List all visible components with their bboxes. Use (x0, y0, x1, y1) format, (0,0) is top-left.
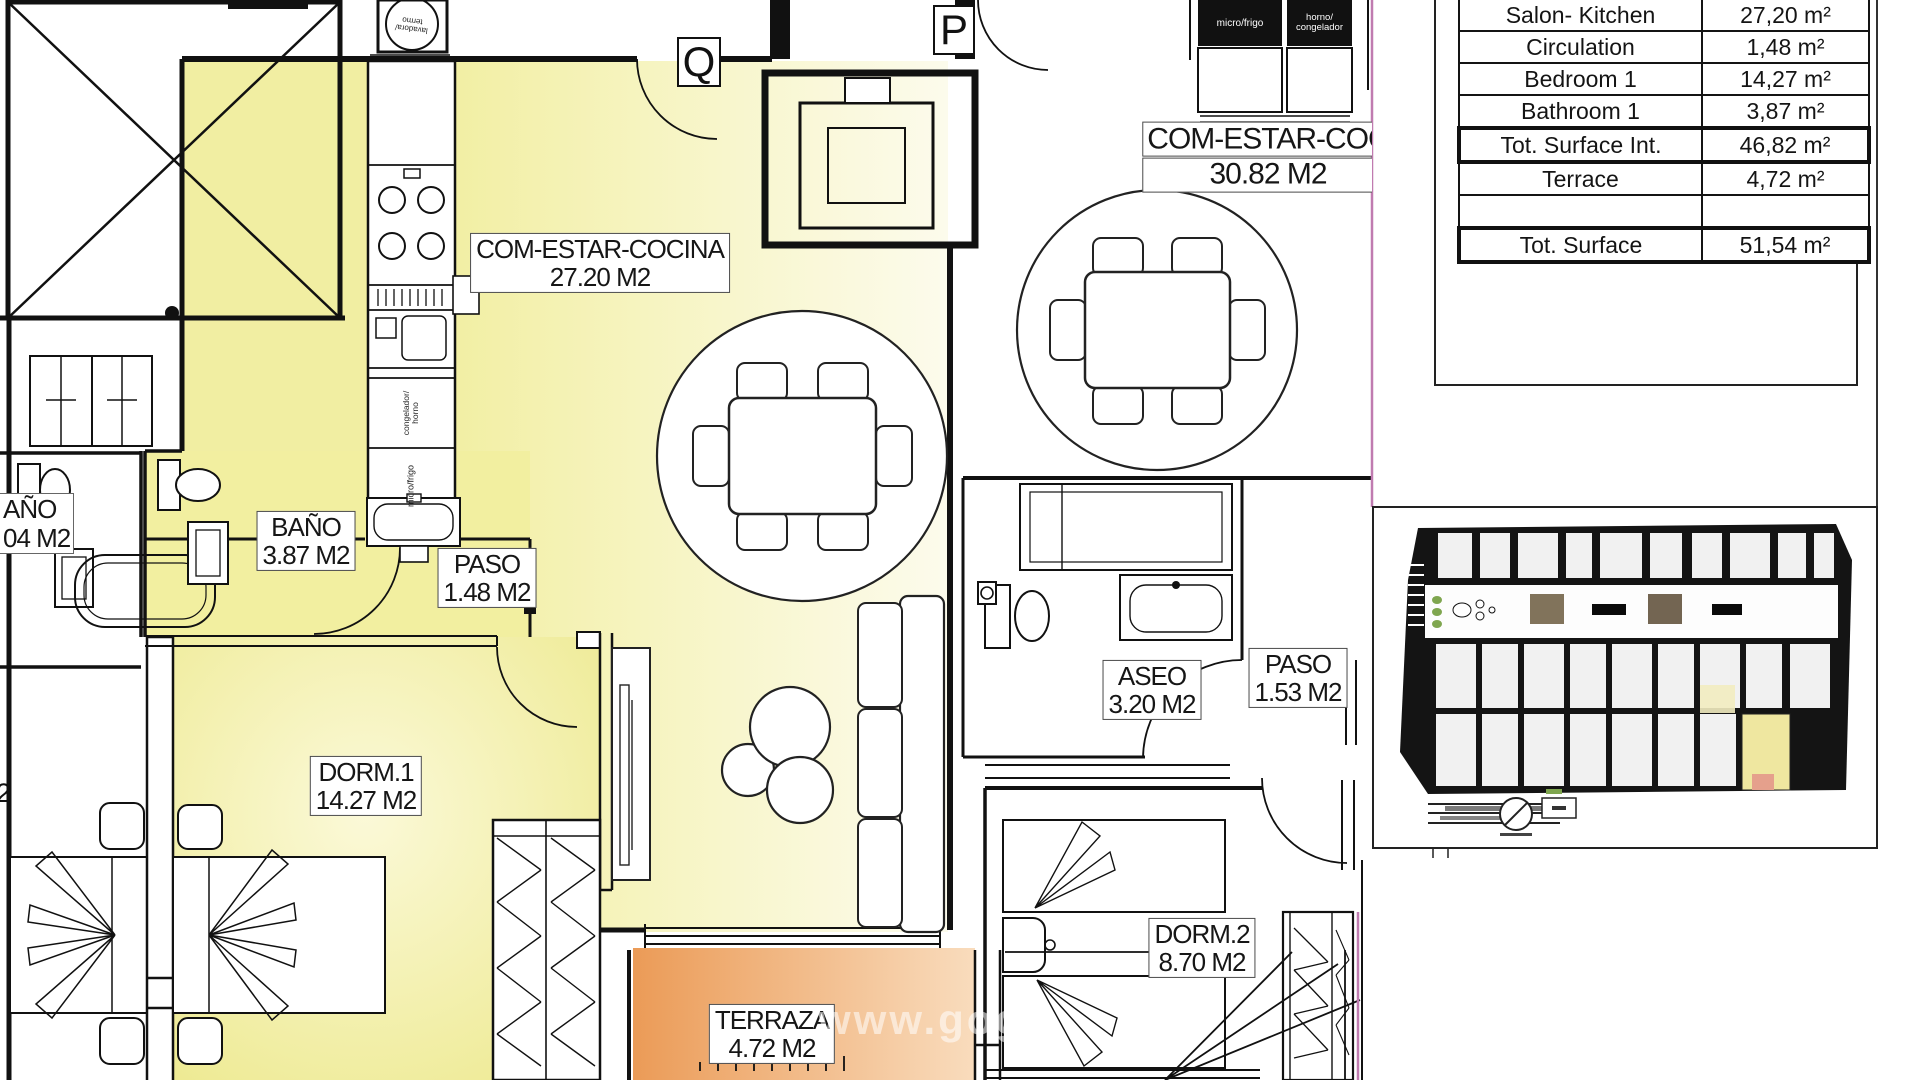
plan-label-layer: COM-ESTAR-COCINA 27.20 M2 BAÑO 3.87 M2 P… (0, 0, 1372, 1080)
table-row-spacer (1459, 195, 1869, 228)
room-name: AÑO (3, 494, 56, 524)
row-label: Terrace (1459, 162, 1702, 195)
table-row-total: Tot. Surface 51,54 m² (1459, 228, 1869, 262)
room-name: TERRAZA (715, 1005, 829, 1035)
row-label: Tot. Surface Int. (1459, 128, 1702, 162)
room-name: DORM.2 (1154, 919, 1249, 949)
room-area: 3.20 M2 (1109, 690, 1196, 718)
room-name: COM-ESTAR-COC (1142, 122, 1372, 157)
room-label-paso-p: PASO 1.53 M2 (1249, 648, 1348, 708)
row-label: Bedroom 1 (1459, 63, 1702, 95)
table-row: Salon- Kitchen 27,20 m² (1459, 0, 1869, 31)
room-area: 1.53 M2 (1255, 678, 1342, 706)
label-micro-frigo-q: micro/frigo (406, 450, 415, 522)
room-area: 30.82 M2 (1142, 158, 1372, 192)
room-area: 04 M2 (3, 523, 70, 553)
label-horno-congelador-p: horno/ congelador (1287, 0, 1352, 46)
table-row: Bathroom 1 3,87 m² (1459, 95, 1869, 128)
table-row-total-int: Tot. Surface Int. 46,82 m² (1459, 128, 1869, 162)
unit-letter-q: Q (677, 37, 721, 87)
room-label-terraza: TERRAZA 4.72 M2 (709, 1004, 835, 1064)
room-name: PASO (1265, 649, 1331, 679)
room-label-dorm1: DORM.1 14.27 M2 (310, 756, 422, 816)
room-area: 27.20 M2 (476, 263, 724, 291)
unit-letter-p: P (933, 5, 975, 55)
row-value: 1,48 m² (1702, 31, 1869, 63)
table-row: Circulation 1,48 m² (1459, 31, 1869, 63)
room-label-dorm2: DORM.2 8.70 M2 (1148, 918, 1255, 978)
row-value: 4,72 m² (1702, 162, 1869, 195)
row-label: Salon- Kitchen (1459, 0, 1702, 31)
room-label-salon-q: COM-ESTAR-COCINA 27.20 M2 (470, 233, 730, 293)
room-area: 3.87 M2 (263, 541, 350, 569)
row-value: 51,54 m² (1702, 228, 1869, 262)
room-area: 14.27 M2 (316, 786, 416, 814)
room-area: 4.72 M2 (715, 1034, 829, 1062)
room-name: BAÑO (271, 512, 341, 542)
row-value (1702, 195, 1869, 228)
miniplan-title-block (1428, 789, 1576, 836)
row-value: 46,82 m² (1702, 128, 1869, 162)
label-congelador-horno: congelador/ horno (402, 390, 420, 436)
row-value: 27,20 m² (1702, 0, 1869, 31)
building-overview-miniplan (1400, 524, 1852, 836)
room-name: DORM.1 (318, 757, 413, 787)
room-label-aseo: ASEO 3.20 M2 (1103, 660, 1202, 720)
row-value: 14,27 m² (1702, 63, 1869, 95)
table-row: Terrace 4,72 m² (1459, 162, 1869, 195)
room-label-bano-q: BAÑO 3.87 M2 (257, 511, 356, 571)
label-lavadora-termo: lavadora/ termo (388, 13, 436, 35)
row-label: Circulation (1459, 31, 1702, 63)
row-label (1459, 195, 1702, 228)
row-label: Tot. Surface (1459, 228, 1702, 262)
room-name: ASEO (1118, 661, 1186, 691)
room-label-paso-q: PASO 1.48 M2 (438, 548, 537, 608)
row-value: 3,87 m² (1702, 95, 1869, 128)
table-row: Bedroom 1 14,27 m² (1459, 63, 1869, 95)
label-micro-frigo-p: micro/frigo (1198, 0, 1282, 46)
cutoff-digit: 2 (0, 778, 11, 809)
room-name: PASO (454, 549, 520, 579)
room-area: 1.48 M2 (444, 578, 531, 606)
area-summary-table: Salon- Kitchen 27,20 m² Circulation 1,48… (1457, 0, 1871, 264)
unit-letter-q-text: Q (683, 38, 716, 86)
unit-letter-p-text: P (940, 6, 968, 54)
floorplan-page: COM-ESTAR-COCINA 27.20 M2 BAÑO 3.87 M2 P… (0, 0, 1920, 1080)
watermark-text: www.gog (818, 996, 1024, 1044)
room-label-neighbor-bath-cut: AÑO 04 M2 (0, 493, 74, 554)
row-label: Bathroom 1 (1459, 95, 1702, 128)
room-name: COM-ESTAR-COCINA (476, 234, 724, 264)
room-label-salon-p: COM-ESTAR-COC 30.82 M2 (1137, 123, 1372, 194)
room-area: 8.70 M2 (1154, 948, 1249, 976)
